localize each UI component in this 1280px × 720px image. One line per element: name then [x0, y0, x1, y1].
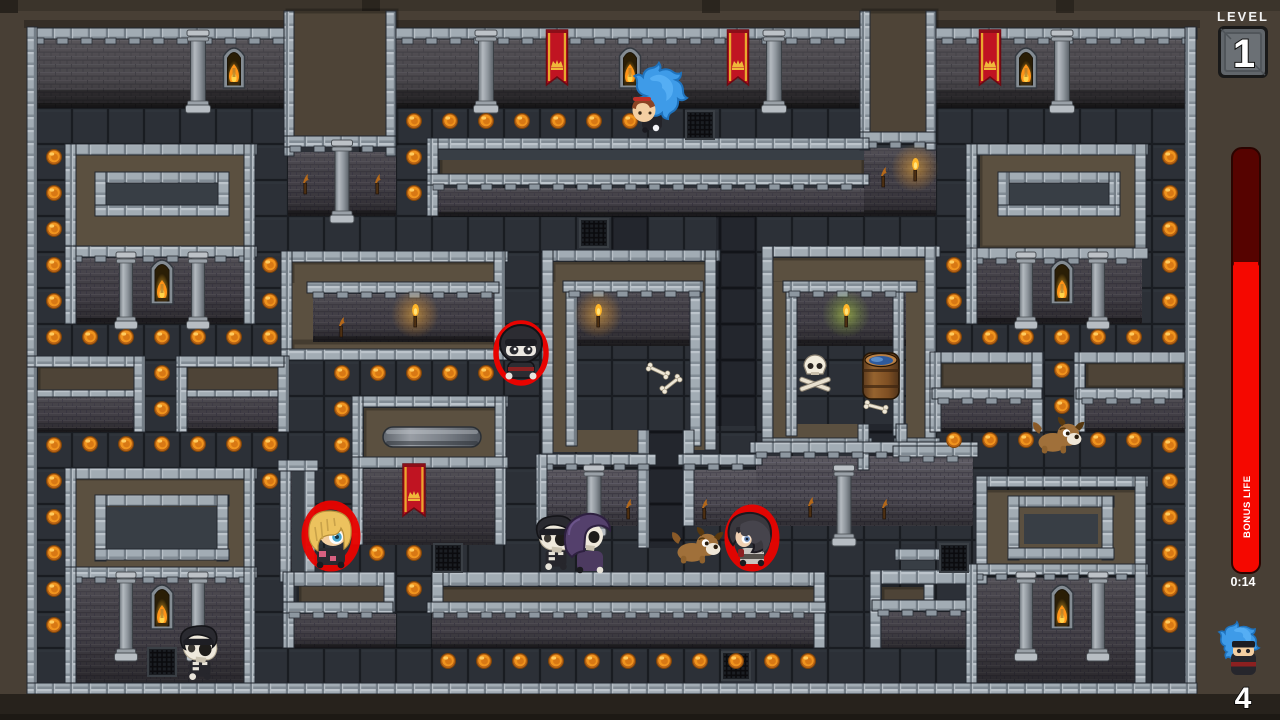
svg-text:0:14: 0:14: [1230, 575, 1255, 589]
svg-text:LEVEL: LEVEL: [1217, 9, 1269, 24]
svg-text:BONUS LIFE: BONUS LIFE: [1242, 475, 1253, 538]
svg-text:1: 1: [1233, 32, 1255, 76]
svg-text:4: 4: [1235, 682, 1252, 715]
